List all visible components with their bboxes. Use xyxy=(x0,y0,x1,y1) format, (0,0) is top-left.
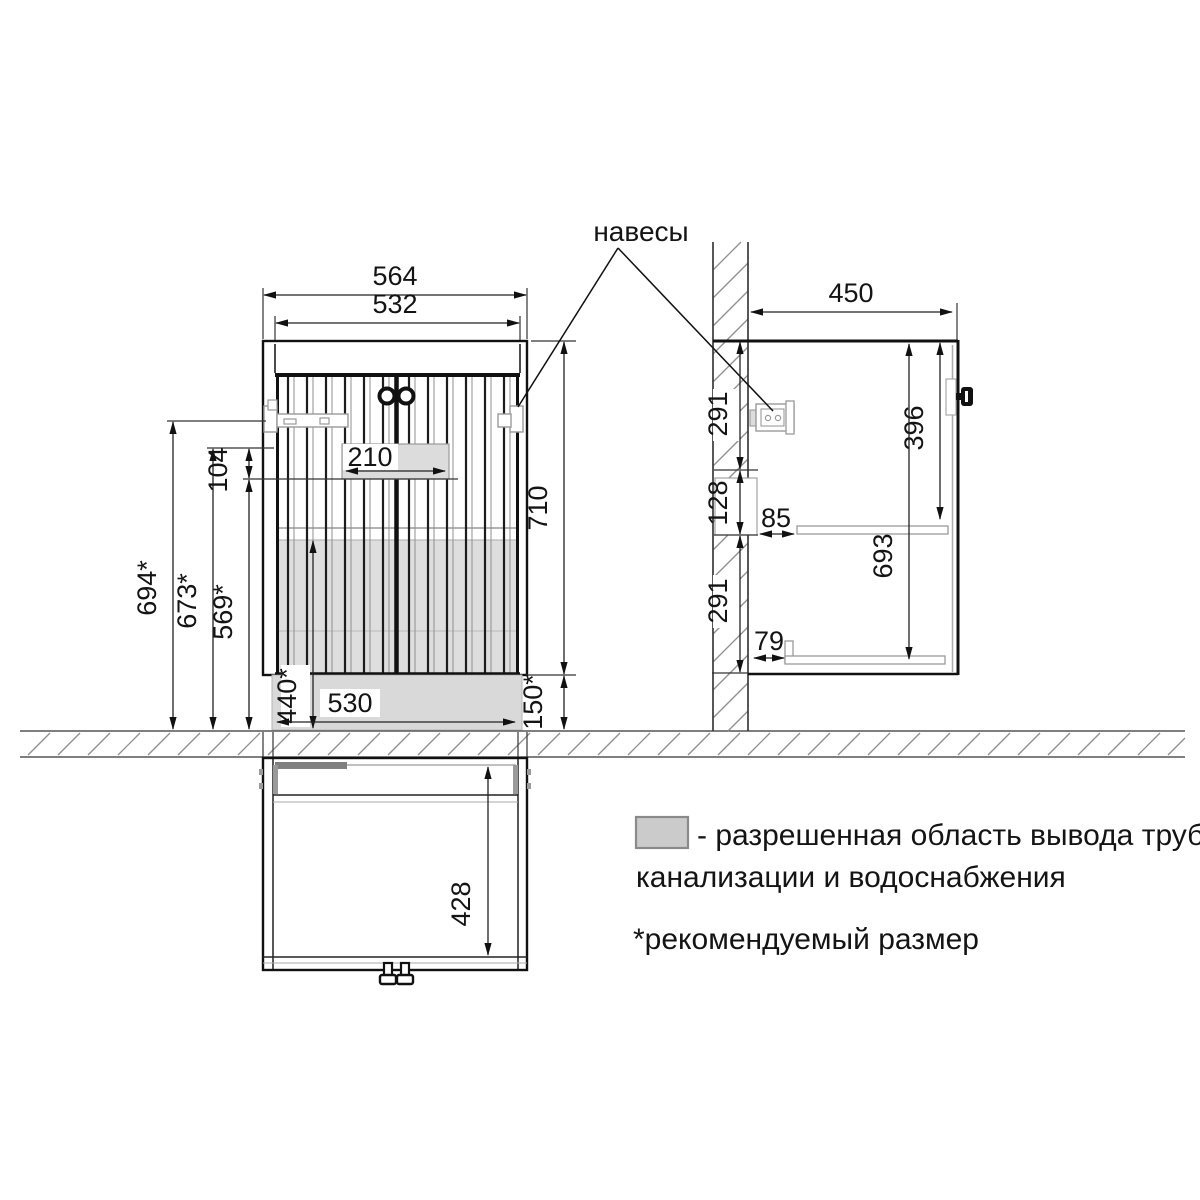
hatch-line xyxy=(713,319,748,354)
hatch-line xyxy=(238,733,260,755)
hinges-callout: навесы xyxy=(518,216,773,411)
side-view xyxy=(713,340,973,675)
technical-drawing: навесы 564532210694*673*569*104440*71015… xyxy=(0,0,1200,1200)
dim-arrow xyxy=(736,457,743,470)
dim-label: 128 xyxy=(703,480,733,525)
dim-arrow xyxy=(275,319,288,326)
dim-arrow xyxy=(736,341,743,354)
dim-arrow xyxy=(750,308,763,315)
floor-section xyxy=(20,731,1185,757)
dim-arrow xyxy=(936,342,943,355)
hatch-line xyxy=(28,733,50,755)
dim-arrow xyxy=(209,717,216,730)
dimension: 85 xyxy=(759,503,795,538)
hatch-line xyxy=(118,733,140,755)
dim-label: 150* xyxy=(518,674,548,730)
dim-label: 396 xyxy=(899,405,929,450)
hatch-line xyxy=(713,263,748,298)
legend-line2: канализации и водоснабжения xyxy=(636,861,1066,894)
legend-note: *рекомендуемый размер xyxy=(633,923,979,956)
dim-arrow xyxy=(245,466,252,479)
hatch-line xyxy=(748,733,770,755)
hatch-line xyxy=(448,733,470,755)
dim-arrow xyxy=(169,421,176,434)
dim-arrow xyxy=(245,448,252,461)
hatch-line xyxy=(298,733,320,755)
hatch-line xyxy=(148,733,170,755)
hinge-left-arm xyxy=(277,414,348,427)
dim-arrow xyxy=(507,319,520,326)
dim-label: 710 xyxy=(523,485,553,530)
side-shelf xyxy=(797,526,948,534)
hinge-right-arm xyxy=(498,414,511,427)
leader-line-side xyxy=(618,248,773,411)
dimension: 694* xyxy=(132,421,177,730)
hatch-line xyxy=(418,733,440,755)
hatch-line xyxy=(598,733,620,755)
drawing-page: навесы 564532210694*673*569*104440*71015… xyxy=(0,0,1200,1200)
hatch-line xyxy=(538,733,560,755)
hinge-left-tab xyxy=(268,400,277,410)
hatch-line xyxy=(838,733,860,755)
hatch-line xyxy=(388,733,410,755)
dim-label: 530 xyxy=(327,688,372,718)
dim-label: 693 xyxy=(868,533,898,578)
mount-nub xyxy=(527,783,531,789)
hatch-line xyxy=(868,733,890,755)
mount-nub xyxy=(259,783,263,789)
dim-label: 694* xyxy=(132,560,162,616)
dim-arrow xyxy=(940,308,953,315)
dim-arrow xyxy=(245,717,252,730)
dimension: 79 xyxy=(753,626,785,662)
hatch-line xyxy=(358,733,380,755)
dim-label: 210 xyxy=(347,442,392,472)
legend: - разрешенная область вывода труб канали… xyxy=(633,817,1200,956)
dim-label: 428 xyxy=(446,881,476,926)
hatch-line xyxy=(808,733,830,755)
dim-label: 532 xyxy=(372,289,417,319)
dim-arrow xyxy=(936,507,943,520)
dim-arrow xyxy=(169,717,176,730)
mount-nub xyxy=(527,769,531,775)
hatch-line xyxy=(728,711,748,731)
dim-label: 85 xyxy=(761,503,791,533)
knob-right xyxy=(399,389,414,404)
dim-label: 450 xyxy=(828,278,873,308)
dim-label: 79 xyxy=(754,626,784,656)
hatch-line xyxy=(658,733,680,755)
mounting-rail xyxy=(275,762,347,769)
hatch-line xyxy=(958,733,980,755)
dimension: 693 xyxy=(868,343,913,660)
hatch-line xyxy=(898,733,920,755)
dim-arrow xyxy=(905,343,912,356)
dimension: 150* xyxy=(518,674,568,730)
dim-label: 569* xyxy=(208,584,238,640)
dim-label: 564 xyxy=(372,261,417,291)
legend-swatch xyxy=(636,817,688,848)
hatch-line xyxy=(328,733,350,755)
side-knob-slot xyxy=(965,391,968,402)
dim-arrow xyxy=(736,470,743,483)
dimension: 450 xyxy=(750,278,953,316)
hatch-line xyxy=(713,627,748,662)
dim-label: 673* xyxy=(172,573,202,629)
dimension: 396 xyxy=(899,342,944,520)
bracket-left xyxy=(273,765,278,794)
legend-line1: - разрешенная область вывода труб xyxy=(697,819,1200,852)
dimension: 104 xyxy=(203,447,253,492)
hatch-line xyxy=(713,242,741,270)
dim-label: 291 xyxy=(703,578,733,623)
dim-arrow xyxy=(263,291,276,298)
hatch-line xyxy=(988,733,1010,755)
knob-left xyxy=(380,389,395,404)
hatch-line xyxy=(208,733,230,755)
dim-arrow xyxy=(736,660,743,673)
dim-arrow xyxy=(245,479,252,492)
hatch-line xyxy=(628,733,650,755)
hatch-line xyxy=(713,543,748,578)
floor-hatch xyxy=(28,733,1185,755)
mount-nub xyxy=(259,769,263,775)
hatch-line xyxy=(568,733,590,755)
hatch-line xyxy=(718,733,740,755)
dimension: 291 xyxy=(703,341,744,470)
hatch-line xyxy=(268,733,290,755)
hatch-line xyxy=(928,733,950,755)
dimension: 710 xyxy=(523,341,568,675)
hatch-line xyxy=(1018,733,1040,755)
dim-label: 104 xyxy=(203,447,233,492)
side-knob-plate xyxy=(946,379,956,415)
hatch-line xyxy=(178,733,200,755)
hatch-line xyxy=(1168,738,1185,755)
hatch-line xyxy=(778,733,800,755)
hatch-line xyxy=(1138,733,1160,755)
hatch-line xyxy=(478,733,500,755)
dim-arrow xyxy=(736,535,743,548)
side-bottom-rail xyxy=(785,656,945,664)
hatch-line xyxy=(713,291,748,326)
dim-arrow xyxy=(560,675,567,688)
dim-arrow xyxy=(560,717,567,730)
bracket-right xyxy=(513,765,518,794)
dim-label: 440* xyxy=(272,668,302,724)
hinges-label: навесы xyxy=(593,216,688,247)
wall-mount-bracket xyxy=(750,401,794,434)
hatch-line xyxy=(688,733,710,755)
hatch-line xyxy=(1048,733,1070,755)
hatch-line xyxy=(713,683,748,718)
dim-label: 291 xyxy=(703,391,733,436)
dim-arrow xyxy=(514,291,527,298)
hatch-line xyxy=(88,733,110,755)
hatch-line xyxy=(1108,733,1130,755)
hatch-line xyxy=(1078,733,1100,755)
hatch-line xyxy=(58,733,80,755)
dimension: 569* xyxy=(208,479,253,730)
dim-arrow xyxy=(560,341,567,354)
dim-arrow xyxy=(560,662,567,675)
leader-line-front xyxy=(518,248,618,407)
